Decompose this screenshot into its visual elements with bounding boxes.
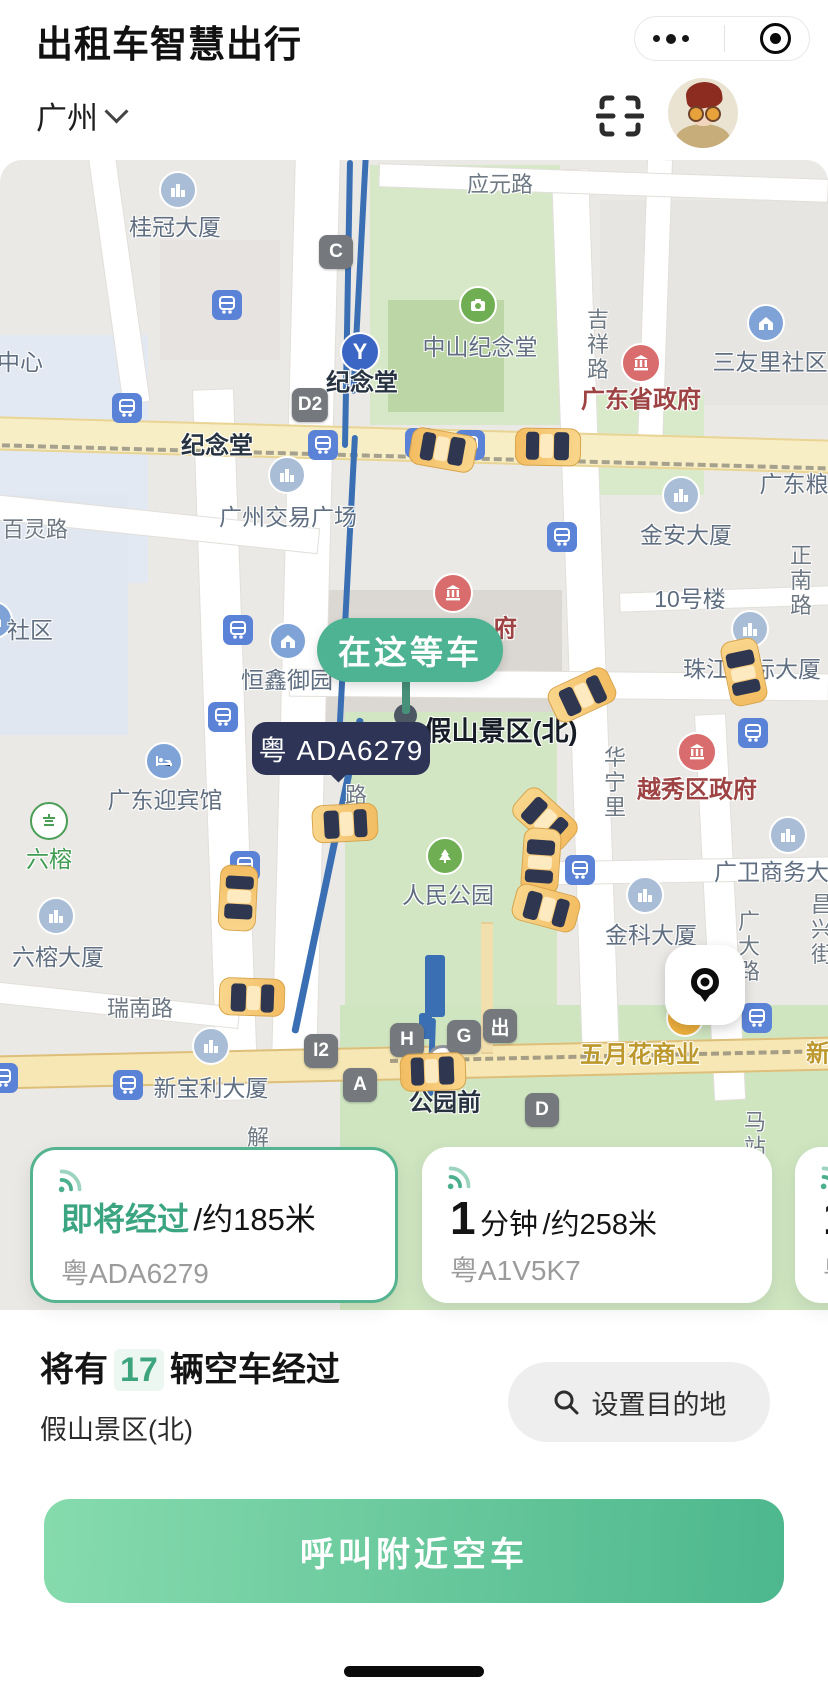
eta-minutes: 1 — [823, 1192, 828, 1244]
metro-icon — [0, 1063, 18, 1093]
exit-badge: A — [343, 1068, 377, 1102]
metro-icon — [223, 615, 253, 645]
nearest-taxi-plate-bubble: 粤 ADA6279 — [252, 722, 430, 775]
chevron-down-icon — [104, 99, 128, 123]
metro-line — [342, 160, 353, 448]
taxi-card-selected[interactable]: 即将经过 /约185米 粤ADA6279 — [30, 1147, 398, 1303]
distance-text: /约185米 — [193, 1202, 315, 1237]
map-label: 吉祥路 — [580, 308, 612, 383]
taxi-icon — [311, 802, 379, 843]
map-label: 纪念堂 — [326, 363, 398, 398]
capsule-divider — [724, 25, 726, 52]
metro-line — [425, 955, 445, 1017]
miniprogram-capsule — [634, 16, 810, 61]
avatar-glasses — [688, 106, 704, 122]
map-label: 广东粮 — [760, 465, 828, 499]
map-label: 人民公园 — [402, 876, 494, 910]
exit-badge: D2 — [292, 388, 328, 422]
building-icon — [192, 1027, 230, 1065]
eta-unit: 分钟 — [480, 1209, 538, 1241]
taxi-icon — [218, 977, 285, 1017]
set-destination-label: 设置目的地 — [592, 1383, 727, 1422]
metro-icon — [742, 1003, 772, 1033]
map-label: 中心 — [0, 343, 43, 377]
map-label: 广东迎宾馆 — [108, 781, 223, 815]
wait-here-marker: 在这等车 — [317, 618, 503, 682]
map-label: 六榕 — [26, 840, 72, 874]
exit-badge: D — [525, 1093, 559, 1127]
building-icon — [626, 876, 664, 914]
locate-me-button[interactable] — [665, 945, 745, 1025]
map-label: 新宝利大厦 — [154, 1069, 269, 1103]
map-label: 应元路 — [467, 167, 533, 199]
building-icon — [662, 476, 700, 514]
metro-icon — [113, 1070, 143, 1100]
summary-suffix: 辆空车经过 — [170, 1351, 340, 1389]
home-icon — [747, 304, 785, 342]
building-icon — [769, 816, 807, 854]
marker-stem — [402, 680, 410, 714]
search-icon — [552, 1388, 580, 1416]
locate-icon — [683, 963, 727, 1007]
map-label: 六榕大厦 — [12, 938, 104, 972]
map-label: 桂冠大厦 — [129, 208, 221, 242]
map-label: 广卫商务大厦 — [714, 853, 828, 887]
summary-prefix: 将有 — [40, 1351, 108, 1389]
metro-icon — [565, 855, 595, 885]
camera-icon — [459, 286, 497, 324]
map-label: 广东省政府 — [581, 380, 701, 415]
map-label: 中山纪念堂 — [423, 328, 538, 362]
map-label: 新 — [806, 1034, 828, 1069]
taxi-card[interactable]: 1 分钟 /约258米 粤A1V5K7 — [422, 1147, 772, 1303]
taxi-icon — [399, 1052, 466, 1092]
page-title: 出租车智慧出行 — [36, 14, 302, 68]
exit-badge: G — [447, 1020, 481, 1054]
building-icon — [268, 456, 306, 494]
avatar[interactable] — [668, 78, 738, 148]
gov-icon — [677, 732, 717, 772]
exit-badge: C — [319, 235, 353, 269]
building-icon — [37, 897, 75, 935]
plate-number: 粤A — [823, 1249, 828, 1289]
scan-qr-button[interactable] — [596, 92, 644, 140]
city-selector[interactable]: 广州 — [36, 93, 125, 138]
map-label: 纪念堂 — [181, 426, 253, 461]
map-label: 广州交易广场 — [219, 498, 357, 532]
map-label: 正南路 — [783, 544, 815, 619]
gov-icon — [621, 343, 661, 383]
empty-taxi-summary: 将有17辆空车经过 — [40, 1342, 340, 1391]
map-label: 昌兴街 — [804, 893, 828, 968]
tree-icon — [426, 837, 464, 875]
map-label: 华宁里 — [597, 746, 629, 821]
exit-badge: H — [390, 1023, 424, 1057]
distance-text: /约258米 — [543, 1209, 657, 1241]
home-icon — [269, 622, 307, 660]
taxi-icon — [217, 864, 258, 932]
map-label: 10号楼 — [654, 580, 726, 614]
avatar-glasses — [705, 106, 721, 122]
exit-badge: I2 — [304, 1034, 338, 1068]
call-nearby-taxi-button[interactable]: 呼叫附近空车 — [44, 1499, 784, 1603]
metro-icon — [208, 702, 238, 732]
temple-icon — [30, 802, 68, 840]
pickup-location-text: 假山景区(北) — [40, 1408, 193, 1447]
app-screen: 出租车智慧出行 广州 在 — [0, 0, 828, 1696]
building-icon — [159, 171, 197, 209]
metro-icon — [112, 393, 142, 423]
metro-icon — [212, 290, 242, 320]
eta-status: 即将经过 — [61, 1201, 189, 1237]
map-label: 越秀区政府 — [637, 770, 757, 805]
map-label: 金安大厦 — [640, 516, 732, 550]
city-label: 广州 — [36, 93, 98, 138]
exit-badge: 出 — [483, 1009, 517, 1043]
header: 出租车智慧出行 广州 — [0, 0, 828, 160]
gov-icon — [433, 573, 473, 613]
taxi-icon — [515, 427, 582, 466]
map-label: 百灵路 — [2, 512, 68, 544]
plate-number: 粤A1V5K7 — [450, 1249, 581, 1289]
set-destination-button[interactable]: 设置目的地 — [508, 1362, 770, 1442]
map-canvas[interactable]: 在这等车 粤 ADA6279 Y桂冠大厦中心应元路纪念堂纪念堂中山纪念堂吉祥路广… — [0, 160, 828, 1310]
exit-target-button[interactable] — [760, 23, 791, 54]
map-label: 瑞南路 — [107, 991, 173, 1023]
map-label: 三友里社区 — [713, 343, 828, 377]
more-menu-button[interactable] — [653, 34, 689, 44]
metro-icon — [547, 522, 577, 552]
eta-minutes: 1 — [450, 1192, 476, 1244]
avatar-shirt — [676, 124, 730, 148]
map-label: 恒鑫御园 — [241, 661, 333, 695]
metro-icon — [308, 430, 338, 460]
summary-count: 17 — [114, 1349, 164, 1391]
map-label: 五月花商业 — [580, 1035, 700, 1070]
plate-number: 粤ADA6279 — [61, 1252, 209, 1292]
taxi-card-partial[interactable]: 1 分 粤A — [795, 1147, 828, 1303]
hotel-icon — [145, 742, 183, 780]
metro-icon — [738, 718, 768, 748]
map-label: 社区 — [7, 611, 53, 645]
home-indicator — [344, 1666, 484, 1677]
scan-icon — [596, 92, 644, 140]
